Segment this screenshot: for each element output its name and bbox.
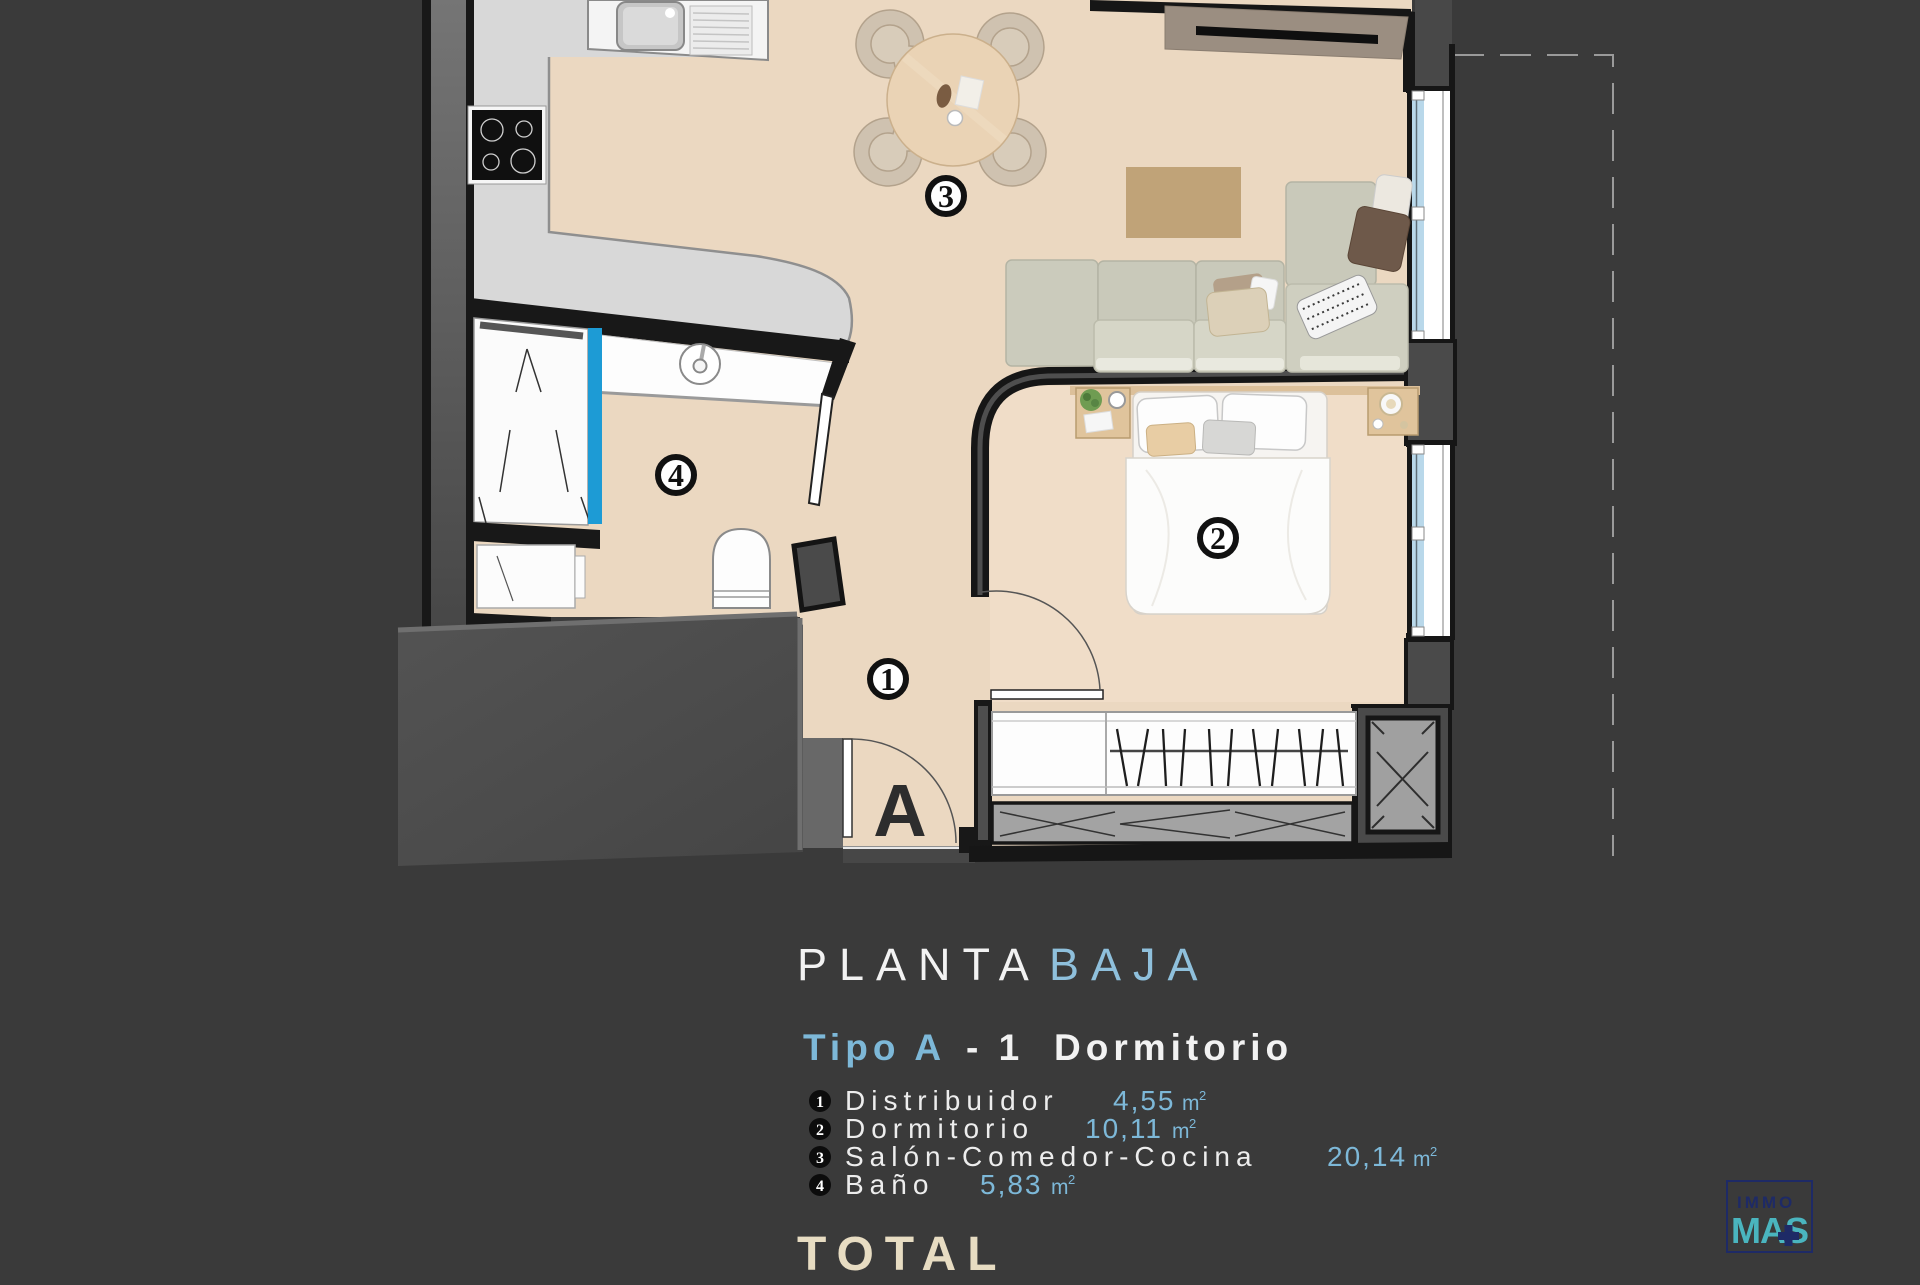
svg-text:PLANTA: PLANTA [797,939,1041,990]
svg-text:3: 3 [816,1150,824,1167]
svg-text:- 1: - 1 [966,1027,1024,1068]
svg-text:Dormitorio: Dormitorio [1054,1027,1293,1068]
svg-text:Distribuidor: Distribuidor [845,1085,1059,1116]
svg-text:1: 1 [880,661,896,697]
svg-text:m: m [1172,1120,1190,1143]
svg-text:4,55: 4,55 [1113,1085,1176,1116]
svg-text:5,83: 5,83 [980,1169,1043,1200]
svg-text:2: 2 [1068,1172,1075,1187]
svg-text:Baño: Baño [845,1169,934,1200]
svg-text:3: 3 [938,178,954,214]
svg-text:Tipo A: Tipo A [803,1027,946,1068]
svg-text:10,11: 10,11 [1085,1113,1163,1144]
svg-text:m: m [1413,1148,1431,1171]
svg-text:MAS: MAS [1731,1210,1808,1251]
svg-text:2: 2 [1199,1088,1206,1103]
svg-text:2: 2 [1189,1116,1196,1131]
svg-text:4: 4 [816,1178,824,1195]
svg-text:A: A [873,769,926,852]
svg-text:1: 1 [816,1094,824,1111]
svg-text:4: 4 [668,457,684,493]
svg-text:2: 2 [1430,1144,1437,1159]
svg-text:Dormitorio: Dormitorio [845,1113,1034,1144]
svg-text:20,14: 20,14 [1327,1141,1407,1172]
svg-text:2: 2 [816,1122,824,1139]
svg-text:m: m [1182,1092,1200,1115]
svg-text:Salón-Comedor-Cocina: Salón-Comedor-Cocina [845,1141,1258,1172]
svg-text:m: m [1051,1176,1069,1199]
svg-text:BAJA: BAJA [1049,939,1210,990]
svg-text:TOTAL: TOTAL [797,1228,1008,1280]
svg-text:2: 2 [1210,520,1226,556]
